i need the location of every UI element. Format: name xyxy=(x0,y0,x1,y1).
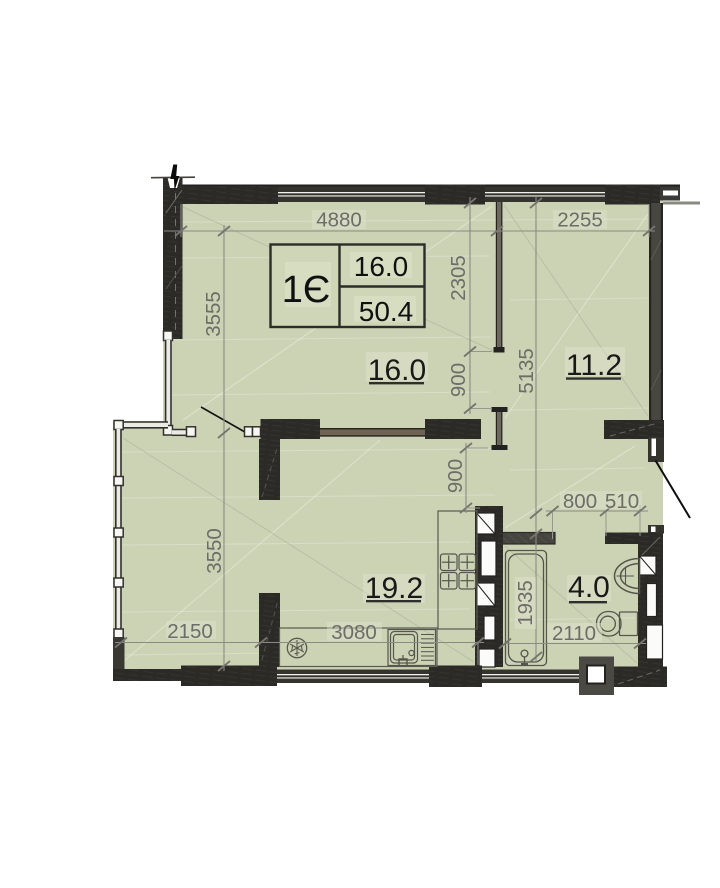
svg-text:50.4: 50.4 xyxy=(359,296,414,327)
svg-text:2150: 2150 xyxy=(167,620,213,643)
svg-text:900: 900 xyxy=(447,363,470,397)
svg-text:3550: 3550 xyxy=(203,528,226,574)
svg-text:11.2: 11.2 xyxy=(566,349,622,382)
svg-text:3555: 3555 xyxy=(202,291,225,337)
svg-text:510: 510 xyxy=(605,490,639,513)
svg-text:4880: 4880 xyxy=(316,209,362,232)
svg-text:800: 800 xyxy=(563,490,597,513)
svg-text:900: 900 xyxy=(444,459,467,493)
svg-text:4.0: 4.0 xyxy=(568,571,610,604)
svg-text:3080: 3080 xyxy=(331,621,377,644)
svg-text:2110: 2110 xyxy=(552,622,596,645)
svg-text:2255: 2255 xyxy=(557,209,603,232)
svg-text:5135: 5135 xyxy=(515,348,538,394)
svg-text:2305: 2305 xyxy=(447,255,470,301)
svg-text:1935: 1935 xyxy=(514,580,537,626)
svg-text:16.0: 16.0 xyxy=(354,251,409,282)
svg-text:1Є: 1Є xyxy=(282,269,330,311)
